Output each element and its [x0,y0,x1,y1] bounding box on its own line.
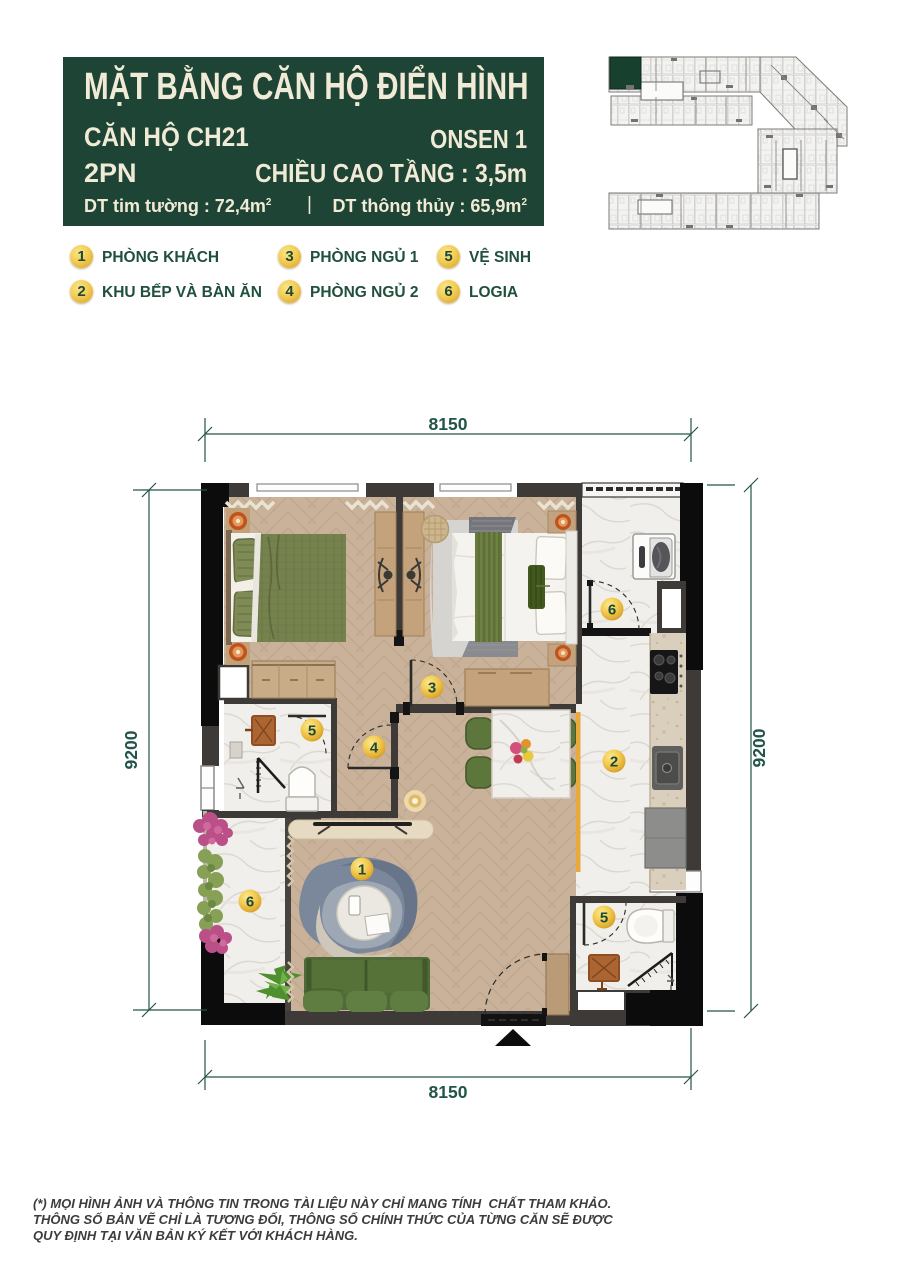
svg-text:1: 1 [358,862,366,879]
svg-text:3: 3 [428,680,436,697]
svg-text:8150: 8150 [429,1082,468,1102]
svg-text:4: 4 [370,740,379,757]
svg-text:9200: 9200 [121,730,141,769]
svg-text:5: 5 [600,910,608,927]
svg-text:8150: 8150 [429,414,468,434]
svg-text:6: 6 [608,602,616,619]
svg-text:2: 2 [610,754,618,771]
svg-text:9200: 9200 [749,728,769,767]
svg-text:5: 5 [308,723,316,740]
svg-text:6: 6 [246,894,254,911]
